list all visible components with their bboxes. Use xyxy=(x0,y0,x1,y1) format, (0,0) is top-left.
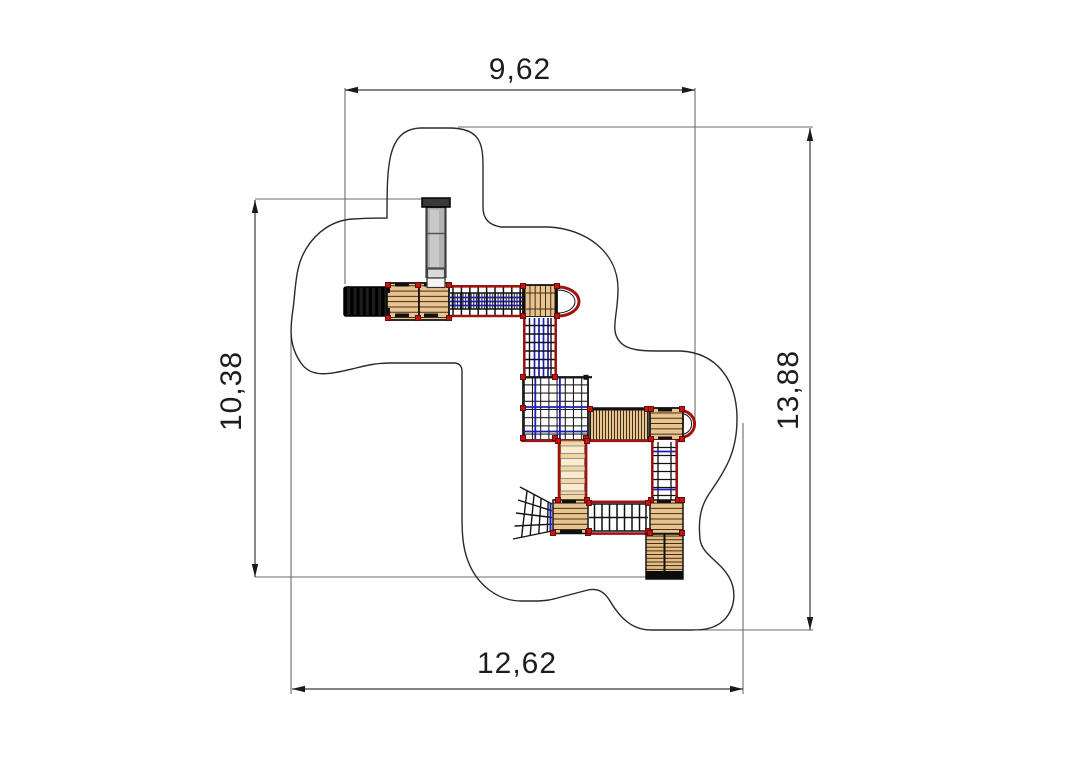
rung-ladder xyxy=(651,440,678,501)
platform-top-2 xyxy=(419,283,449,320)
climbing-arc-top xyxy=(558,287,579,316)
platform-bottom-2 xyxy=(650,500,683,534)
platform-top-3 xyxy=(523,285,557,317)
dim-label-bottom-width: 12,62 xyxy=(477,647,557,681)
climbing-arc-right xyxy=(684,411,695,437)
exit-ramp xyxy=(646,534,683,579)
tube-slide xyxy=(422,198,450,288)
equipment-structure xyxy=(344,198,695,579)
plank-bridge-platform xyxy=(590,408,648,440)
arc-platform-right xyxy=(650,408,683,440)
platform-bottom-1 xyxy=(553,500,588,534)
plan-drawing: 9,62 10,38 13,88 12,62 xyxy=(0,0,1080,764)
fan-climbing-net xyxy=(513,487,552,539)
plank-ladder xyxy=(558,441,587,500)
platform-top-1 xyxy=(386,283,419,320)
entry-stairs xyxy=(344,287,387,316)
dim-label-left-height: 10,38 xyxy=(215,351,249,431)
climbing-net-platform xyxy=(523,378,588,441)
dim-label-right-height: 13,88 xyxy=(772,350,806,430)
monkey-bar-bridge xyxy=(589,504,648,532)
rope-bridge xyxy=(449,286,524,316)
dim-label-top-width: 9,62 xyxy=(489,53,551,87)
net-wall-column xyxy=(521,317,592,380)
